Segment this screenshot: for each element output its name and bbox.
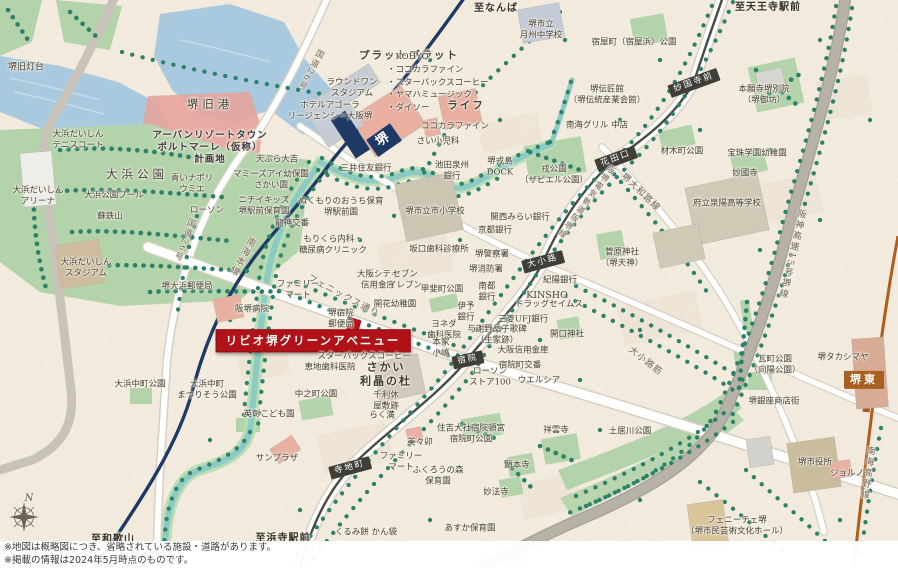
poi-label: 府立泉陽高等学校 bbox=[693, 199, 761, 210]
poi-label: 大浜だいしん テニスコート bbox=[52, 129, 103, 150]
location-map: 至なんば至天王寺駅前至和歌山至浜寺駅前堺堺東妙国寺前花田口大小路宿院寺地町南海本… bbox=[0, 0, 898, 568]
park-label: 中之町公園 bbox=[295, 390, 338, 401]
route26-label: 国道26号 bbox=[294, 47, 325, 93]
poi-label: くるみ餅 かん袋 bbox=[335, 528, 397, 539]
route26-label: 国道26号 bbox=[171, 216, 197, 263]
poi-label: 菅原神社 （堺天神） bbox=[601, 247, 644, 268]
poi-label: 祥雲寺 bbox=[543, 426, 569, 437]
poi-label: 三井住友銀行 bbox=[340, 164, 391, 175]
park-label: 大浜公園 bbox=[106, 167, 168, 181]
poi-label: ホテルアゴーラ リージェンシー大阪堺 bbox=[288, 100, 373, 121]
development-site-label: アーバンリゾートタウン ポルトマーレ（仮称） 計画地 bbox=[152, 130, 267, 166]
poi-label: 千利休 屋敷跡 bbox=[373, 390, 399, 411]
park-label: 大浜中町公園 bbox=[114, 380, 165, 391]
poi-label: さかい 利晶の杜 bbox=[360, 360, 412, 388]
poi-label: 蘇鉄山 bbox=[97, 212, 123, 223]
poi-label: 本願寺堺別院 （堺御坊） bbox=[738, 84, 789, 105]
poi-label: もりくら内科・ 糖尿病クリニック bbox=[299, 234, 367, 255]
park-label: 材木町公園 bbox=[661, 147, 704, 158]
compass-north-label: N bbox=[25, 493, 34, 506]
park-label: 土居川公園 bbox=[609, 427, 652, 438]
poi-label: 大浜だいしん スタジアム bbox=[60, 257, 111, 278]
poi-label: 京都銀行 bbox=[478, 226, 512, 237]
poi-label: 与謝野晶子歌碑 （生家跡） bbox=[467, 324, 527, 345]
poi-label: ドラッグセイムス bbox=[515, 300, 583, 311]
poi-label: ラウンドワン スタジアム bbox=[326, 77, 377, 98]
yamatoji-road-label: 堺大和路線 bbox=[618, 172, 662, 215]
poi-label: 宝珠学園幼稚園 bbox=[727, 149, 787, 160]
poi-label: 堺市立市小学校 bbox=[405, 207, 465, 218]
poi-label: 池田泉州 銀行 bbox=[435, 160, 469, 181]
poi-label: 顕本寺 bbox=[504, 461, 530, 472]
poi-label: らく満 bbox=[369, 411, 395, 422]
poi-label: あすか保育園 bbox=[444, 524, 495, 535]
to-tennoji-label: 至天王寺駅前 bbox=[735, 2, 801, 15]
poi-label: フェニーチェ堺 （堺市民芸術文化ホール） bbox=[686, 515, 788, 536]
expressway-label: 阪神高速15号堺線 bbox=[775, 208, 807, 301]
poi-label: 大阪信用金庫 bbox=[497, 346, 548, 357]
poi-label: 堺タカシマヤ bbox=[817, 353, 868, 364]
map-disclaimer-note: ※地図は概略図につき、省略されている施設・道路があります。 bbox=[4, 542, 898, 555]
poi-label: ジョルノ bbox=[830, 469, 864, 480]
poi-label: 堺市役所 bbox=[798, 458, 832, 469]
poi-label: ふくろうの森 保育園 bbox=[412, 465, 463, 486]
station-terajicho: 寺地町 bbox=[328, 456, 372, 479]
station-oshoji: 大小路 bbox=[521, 250, 565, 273]
poi-label: サンプラザ bbox=[256, 454, 298, 465]
poi-label: 堺旧港 bbox=[187, 97, 234, 111]
property-label: リビオ堺グリーンアベニュー bbox=[216, 329, 411, 352]
footnote-band: ※地図は概略図につき、省略されている施設・道路があります。 ※掲載の情報は202… bbox=[0, 541, 898, 568]
to-namba-label: 至なんば bbox=[474, 3, 518, 16]
park-label: 戎公園 （ザビエル公園） bbox=[520, 164, 588, 185]
poi-label: さい小児科 bbox=[417, 137, 460, 148]
poi-label: 開口神社 bbox=[550, 330, 584, 341]
oshoji-suji-label: 大小路筋 bbox=[626, 345, 664, 379]
poi-label: セブン イレブン bbox=[388, 269, 422, 290]
poi-label: 青いナポリ ウミエ bbox=[171, 173, 214, 194]
poi-label: 美々卯 bbox=[407, 438, 433, 449]
poi-label: 堺宿院 郵便局 bbox=[328, 308, 354, 329]
park-label: 瓦町公園 （向陽公園） bbox=[749, 354, 800, 375]
station-myokokujimae: 妙国寺前 bbox=[667, 68, 720, 98]
poi-label: 恵地歯科医院 bbox=[304, 363, 355, 374]
poi-label: 堺旧灯台 bbox=[8, 62, 44, 73]
poi-label: 堺伝匠館 （堺伝統産業会館） bbox=[569, 84, 646, 105]
station-sakaihigashi: 堺東 bbox=[844, 371, 884, 389]
poi-label: ぬくもりのおうち保育 堺駅前園 bbox=[298, 196, 383, 217]
poi-label: 龍神交番 bbox=[275, 219, 309, 230]
poi-label: ウエルシア bbox=[518, 376, 561, 387]
poi-label: 堺銀座商店街 bbox=[748, 397, 799, 408]
poi-label: 英彰こども園 bbox=[243, 410, 294, 421]
poi-label: 堺警察署 bbox=[475, 250, 509, 261]
poi-label: 妙法寺 bbox=[483, 488, 509, 499]
poi-label: 南海グリル 中店 bbox=[566, 121, 628, 132]
poi-label: 天ぷら大吉 bbox=[256, 155, 299, 166]
poi-label: ニチイキッズ 堺駅前保育園 bbox=[238, 195, 289, 216]
poi-label: 堺戎島 DOCK bbox=[487, 156, 514, 177]
poi-label: ローソン bbox=[190, 206, 224, 217]
poi-label: 開花幼稚園 bbox=[374, 300, 417, 311]
poi-label: 宿院町交番 bbox=[499, 361, 542, 372]
poi-label: 関西みらい銀行 bbox=[490, 213, 550, 224]
poi-label: 坂口歯科診療所 bbox=[409, 245, 469, 256]
poi-label: ココカラファイン bbox=[421, 122, 489, 133]
poi-label: 南都 銀行 bbox=[478, 281, 495, 302]
poi-label: 堺消防署 bbox=[469, 265, 503, 276]
map-date-note: ※掲載の情報は2024年5月時点のものです。 bbox=[4, 555, 898, 568]
park-label: 甲斐町公園 bbox=[421, 285, 464, 296]
park-label: 大浜中町 まつりそう公園 bbox=[177, 379, 237, 400]
poi-label: 大浜公園プール bbox=[84, 191, 144, 202]
nankai-main-line-label: 南海本線 bbox=[225, 234, 257, 278]
map-labels: 至なんば至天王寺駅前至和歌山至浜寺駅前堺堺東妙国寺前花田口大小路宿院寺地町南海本… bbox=[0, 0, 898, 568]
poi-label: 阪堺病院 bbox=[235, 305, 269, 316]
station-sakai: 堺 bbox=[366, 123, 402, 157]
poi-label: ライフ bbox=[447, 99, 485, 112]
park-label: 宿屋町（宿屋浜）公園 bbox=[591, 38, 676, 49]
poi-label: ファミリー マート bbox=[277, 279, 320, 300]
poi-label: 大浜だいしん アリーナ bbox=[12, 185, 63, 206]
poi-label: 妙國寺 bbox=[732, 169, 758, 180]
poi-label: 紀陽銀行 bbox=[543, 276, 577, 287]
poi-label: 堺大浜郵便局 bbox=[161, 282, 212, 293]
poi-label: マミーズアイ幼保園 さかい園 bbox=[233, 169, 309, 190]
poi-label: 本家 小嶋 bbox=[432, 337, 449, 358]
poi-label: 堺市立 月州中学校 bbox=[520, 19, 563, 40]
poi-label: 住吉大社宿院頓宮 宿院町公園 bbox=[437, 423, 505, 444]
